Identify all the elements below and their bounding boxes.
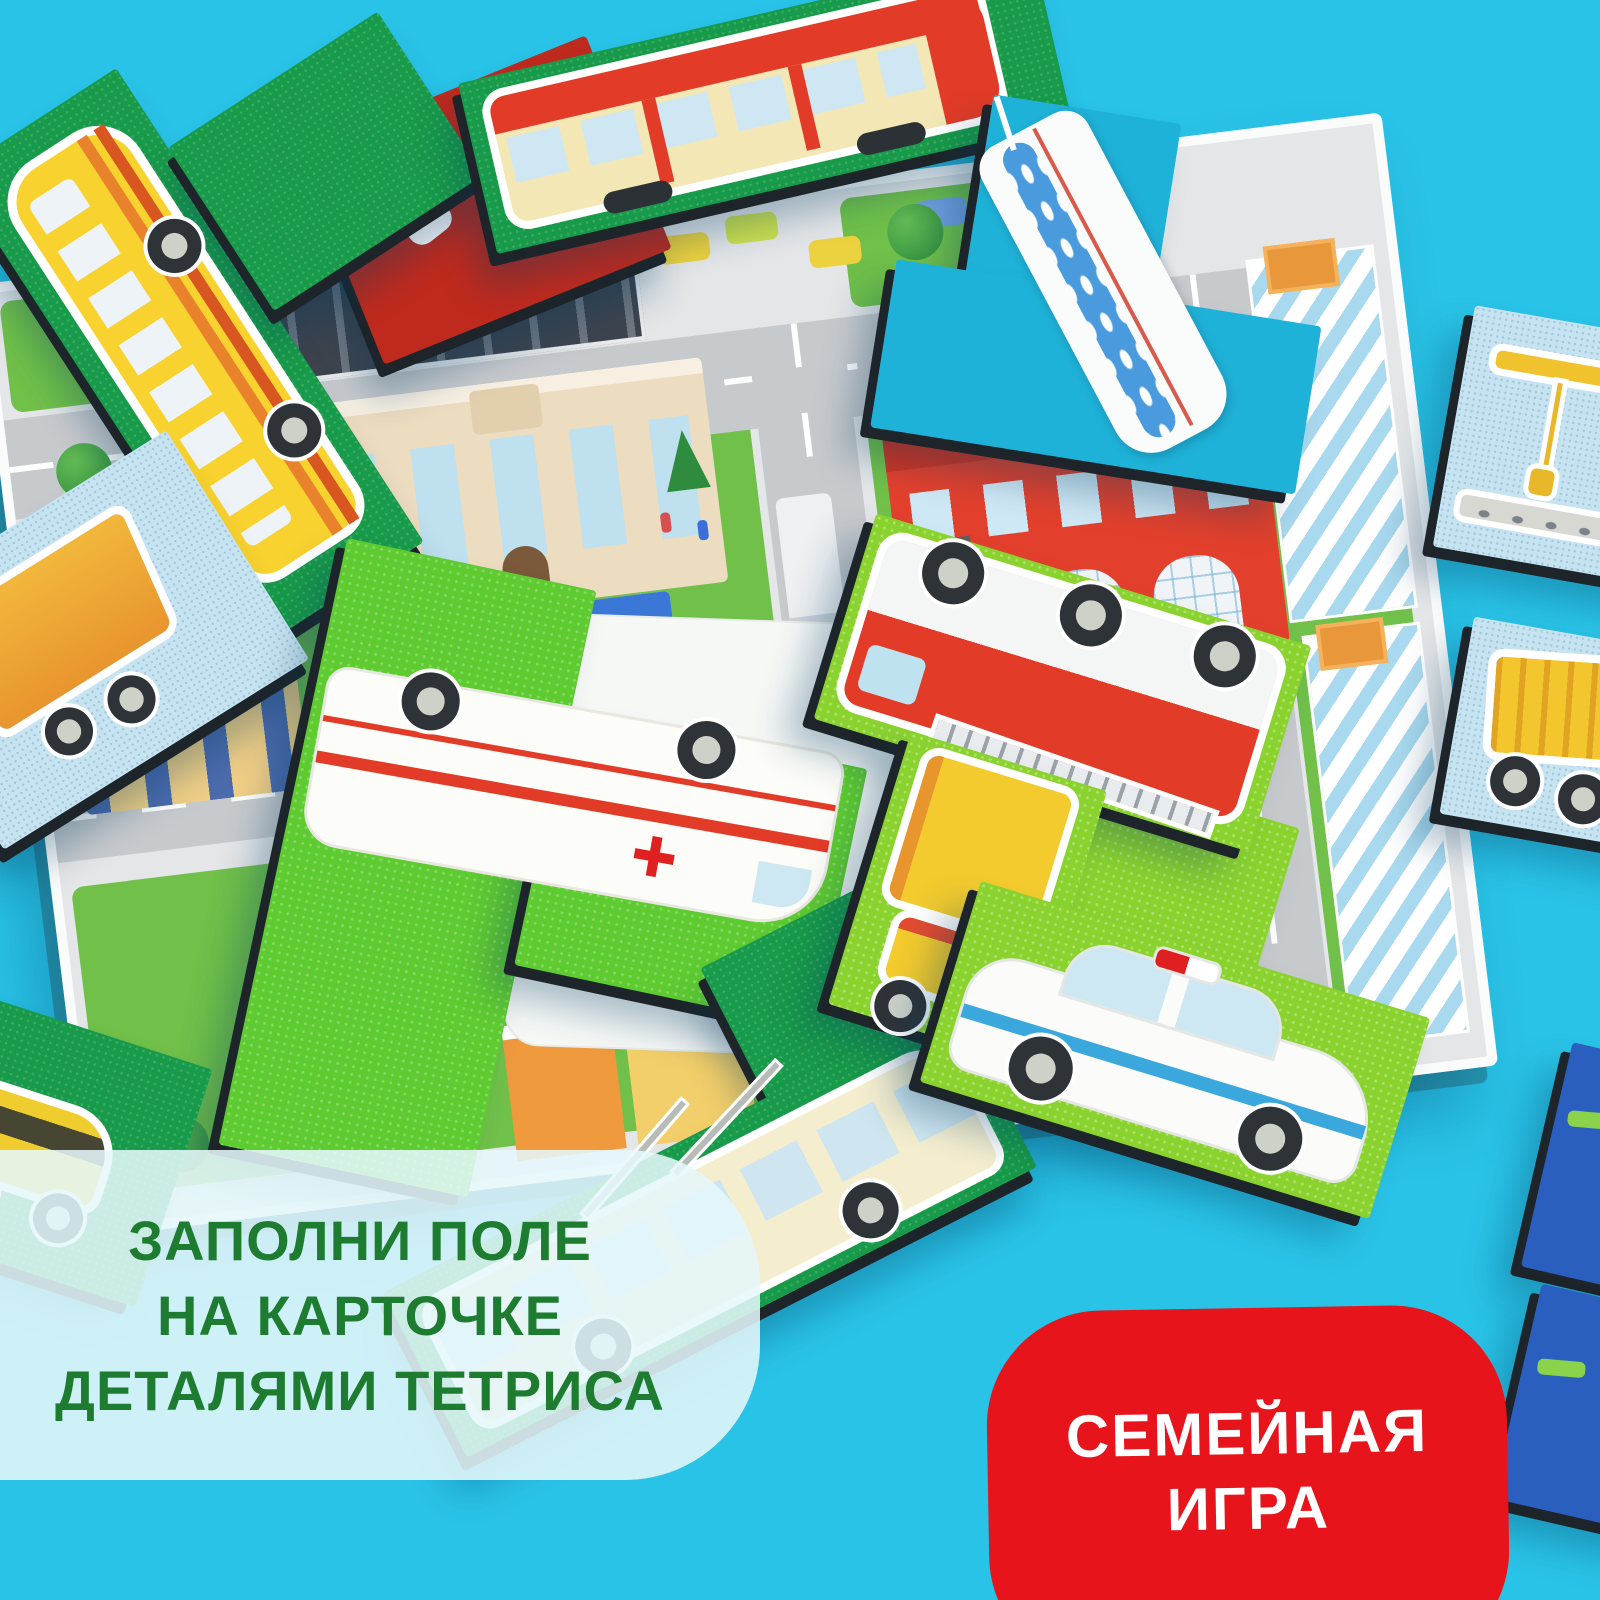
ambulance-cross-icon — [631, 833, 677, 879]
truck-wheel — [93, 661, 170, 738]
crane-arm-icon — [1495, 350, 1600, 397]
family-game-badge: СЕМЕЙНАЯ ИГРА — [985, 1303, 1511, 1600]
crane-cable — [1542, 383, 1563, 474]
crane-beam — [1458, 494, 1600, 550]
promo-line-2: НА КАРТОЧКЕ — [157, 1283, 563, 1348]
promo-text-panel: ЗАПОЛНИ ПОЛЕ НА КАРТОЧКЕ ДЕТАЛЯМИ ТЕТРИС… — [0, 1150, 760, 1480]
ambulance-windshield — [752, 861, 812, 912]
tram-bogie — [601, 178, 674, 215]
promo-line-3: ДЕТАЛЯМИ ТЕТРИСА — [55, 1358, 665, 1423]
piece-navy-b — [1492, 1284, 1600, 1537]
sticker-edge — [1567, 1110, 1600, 1130]
pine-tree — [660, 427, 711, 492]
sticker-edge — [1537, 1358, 1586, 1378]
promo-line-1: ЗАПОЛНИ ПОЛЕ — [128, 1208, 592, 1273]
piece-ship — [871, 83, 1350, 491]
truck-wheel — [1482, 748, 1549, 815]
parked-car — [724, 211, 779, 245]
crane-hook — [1527, 467, 1555, 497]
truck-wheel — [1549, 766, 1600, 833]
fire-truck-window — [856, 643, 927, 706]
ambulance-stripe — [315, 750, 829, 852]
tower-roof — [1315, 617, 1388, 671]
scene: ЗАПОЛНИ ПОЛЕ НА КАРТОЧКЕ ДЕТАЛЯМИ ТЕТРИС… — [0, 0, 1600, 1600]
parked-car — [808, 235, 863, 269]
piece-navy-a — [1521, 1042, 1600, 1298]
badge-line-2: ИГРА — [1166, 1470, 1331, 1548]
piece-crane — [1433, 305, 1600, 590]
badge-line-1: СЕМЕЙНАЯ — [1065, 1393, 1429, 1474]
dump-truck-yellow-icon — [1490, 656, 1600, 761]
piece-dump-truck-yellow — [1439, 617, 1600, 854]
